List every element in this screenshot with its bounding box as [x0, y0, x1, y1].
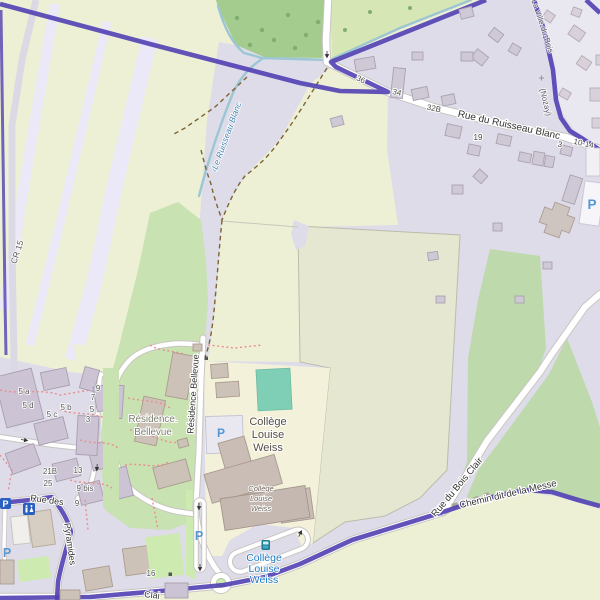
- svg-text:Bellevue: Bellevue: [134, 427, 172, 438]
- svg-text:5 d: 5 d: [22, 401, 33, 410]
- svg-text:5 b: 5 b: [60, 403, 72, 412]
- svg-text:25: 25: [44, 479, 53, 488]
- svg-text:Weiss: Weiss: [250, 574, 278, 586]
- svg-text:Weiss: Weiss: [253, 442, 283, 454]
- svg-text:P: P: [587, 197, 596, 212]
- svg-text:9 bis: 9 bis: [77, 484, 94, 493]
- svg-text:Résidence.: Résidence.: [128, 414, 177, 425]
- svg-text:Clai: Clai: [144, 589, 160, 600]
- svg-text:Collège: Collège: [249, 416, 286, 428]
- svg-text:P: P: [195, 529, 203, 543]
- svg-text:19: 19: [474, 133, 483, 142]
- svg-text:16: 16: [147, 569, 156, 578]
- svg-text:7: 7: [91, 393, 96, 402]
- svg-text:5 c: 5 c: [47, 410, 58, 419]
- svg-text:P: P: [217, 426, 225, 440]
- svg-text:5: 5: [90, 405, 95, 414]
- svg-text:3: 3: [86, 415, 91, 424]
- svg-text:Louise: Louise: [250, 494, 272, 503]
- svg-text:5 a: 5 a: [18, 387, 30, 396]
- svg-text:21B: 21B: [43, 467, 57, 476]
- svg-text:P: P: [3, 546, 11, 560]
- svg-text:P: P: [2, 499, 8, 509]
- svg-text:9: 9: [75, 499, 80, 508]
- svg-text:13: 13: [74, 466, 83, 475]
- svg-text:Weiss: Weiss: [251, 504, 272, 513]
- svg-text:9: 9: [96, 384, 101, 393]
- svg-text:Collège: Collège: [248, 484, 273, 493]
- svg-text:Louise: Louise: [252, 429, 284, 441]
